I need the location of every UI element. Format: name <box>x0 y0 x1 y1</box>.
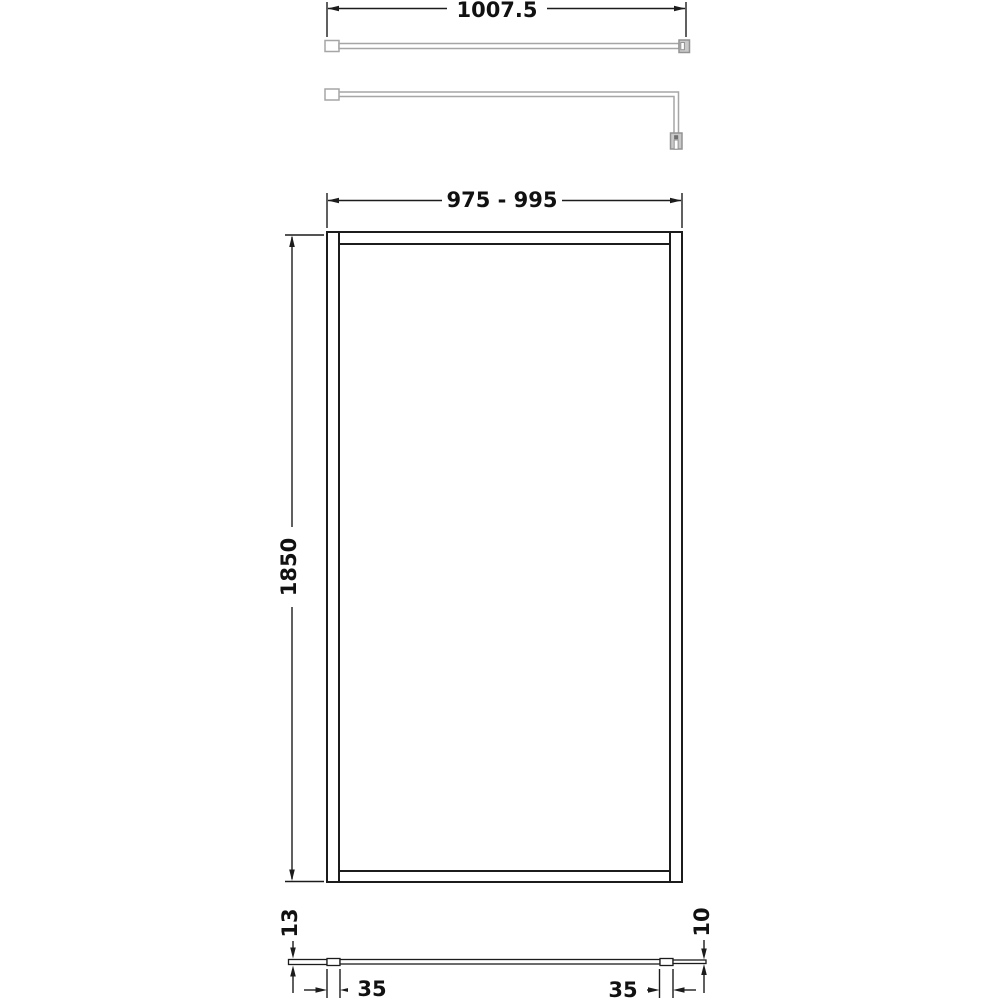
wall-bracket-side <box>325 89 339 100</box>
arrowhead-right <box>670 198 682 204</box>
arrowhead-down <box>701 949 707 960</box>
bottom-right-profile-block <box>660 959 673 966</box>
left-profile-width-label: 35 <box>348 979 396 1000</box>
bottom-left-profile-block <box>327 959 340 966</box>
arrowhead-up <box>290 966 296 977</box>
support-bar-plan-view <box>325 40 690 53</box>
bottom-left-segment <box>289 960 328 965</box>
panel-width-range-label: 975 - 995 <box>442 190 562 211</box>
arrowhead-right <box>316 987 328 992</box>
support-bar-side-outer <box>339 92 679 133</box>
wall-bracket-plan <box>325 41 339 52</box>
panel-outer-frame <box>327 232 682 882</box>
arrowhead-bottom <box>289 870 295 881</box>
support-bar-plan <box>339 44 679 49</box>
drawing-linework <box>0 0 1000 1000</box>
support-bar-side-inner <box>339 97 674 134</box>
bottom-glass-panel <box>340 960 660 965</box>
right-profile-width-label: 35 <box>599 980 647 1000</box>
arrowhead-right <box>674 6 686 12</box>
glass-clamp-screw <box>674 135 678 139</box>
arrowhead-left <box>328 6 340 12</box>
arrowhead-right <box>648 987 660 992</box>
support-bar-length-label: 1007.5 <box>447 0 547 21</box>
arrowhead-top <box>289 236 295 248</box>
panel-height-label: 1850 <box>279 527 301 607</box>
support-bar-side-view <box>325 89 682 149</box>
arrowhead-left <box>328 198 340 204</box>
arrowhead-left <box>673 987 685 992</box>
bottom-right-segment <box>673 960 706 964</box>
glass-clamp-plan-slot <box>681 43 685 50</box>
panel-bottom-view <box>289 959 707 966</box>
glass-clamp-slot <box>674 140 678 149</box>
bottom-right-thickness-label: 10 <box>692 904 714 940</box>
technical-drawing-canvas: 1007.5 975 - 995 1850 13 10 35 35 <box>0 0 1000 1000</box>
bottom-left-thickness-label: 13 <box>280 905 302 941</box>
arrowhead-up <box>701 964 707 975</box>
arrowhead-down <box>290 948 296 959</box>
panel-front-view <box>327 232 682 882</box>
